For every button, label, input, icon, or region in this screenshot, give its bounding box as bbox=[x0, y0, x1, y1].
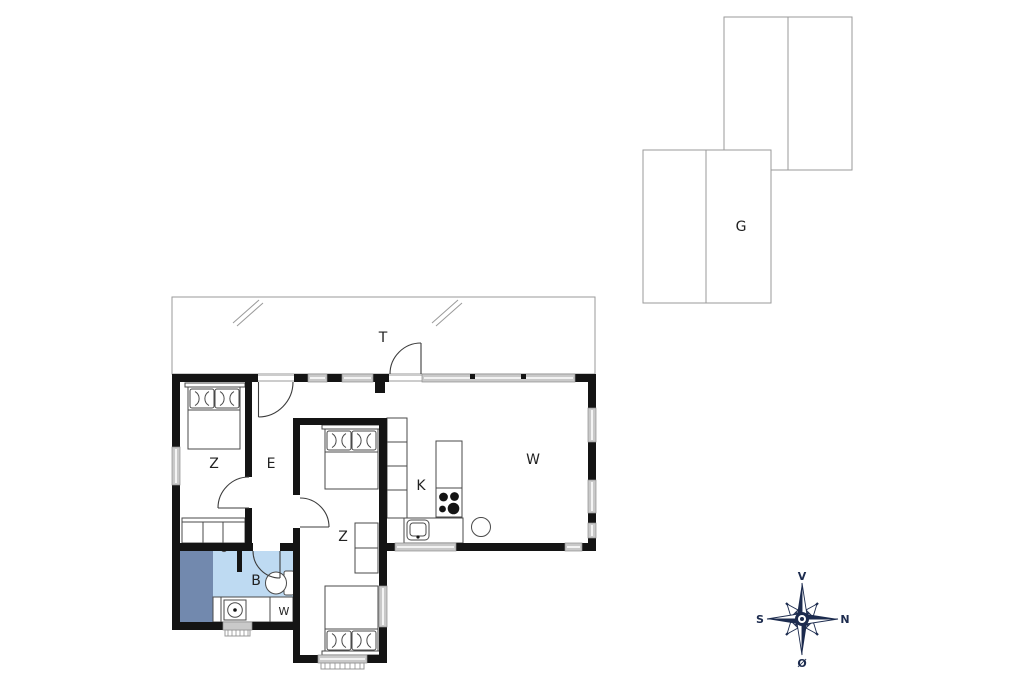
wall-segment bbox=[293, 418, 300, 663]
bedroom2-door bbox=[300, 498, 329, 527]
pillow bbox=[327, 431, 351, 450]
shower-floor bbox=[180, 547, 213, 622]
dresser bbox=[355, 523, 378, 573]
faucet-dot bbox=[416, 535, 419, 538]
window-mullion bbox=[521, 374, 526, 379]
round-stool bbox=[472, 518, 491, 537]
wall-stub bbox=[375, 382, 385, 393]
terrace: T bbox=[172, 297, 595, 374]
window-mullion bbox=[470, 374, 475, 379]
bed-headboard bbox=[322, 651, 381, 655]
pillow bbox=[327, 631, 351, 650]
shower-partition bbox=[237, 547, 242, 572]
kitchen-fixtures bbox=[387, 418, 491, 543]
stove-burner bbox=[448, 503, 460, 515]
room-label-bedroom2: Z bbox=[338, 529, 348, 545]
room-label-terrace: T bbox=[378, 330, 388, 346]
room-label-bathroom: B bbox=[251, 573, 261, 589]
room-label-living: W bbox=[526, 452, 540, 468]
compass-label-left: S bbox=[756, 613, 764, 626]
room-label-kitchen: K bbox=[416, 478, 426, 494]
washing-machine bbox=[224, 600, 246, 620]
bedroom1-door-opening bbox=[245, 477, 252, 508]
stove-burner bbox=[450, 492, 459, 501]
bed-headboard bbox=[185, 383, 245, 387]
kitchen-tall-cabinet-stove bbox=[436, 441, 462, 517]
bathroom-vent-window bbox=[223, 622, 252, 630]
room-label-utility: W bbox=[279, 605, 290, 618]
wall-segment bbox=[293, 418, 387, 425]
floor-plan-page: G T bbox=[0, 0, 1024, 682]
bathroom-door-opening bbox=[253, 543, 280, 551]
window-sill-grate bbox=[321, 663, 364, 669]
wall-segment bbox=[245, 382, 252, 543]
pillow bbox=[352, 631, 376, 650]
entrance-door bbox=[259, 382, 294, 417]
compass-label-right: N bbox=[840, 613, 849, 626]
bedroom1-door bbox=[218, 477, 249, 508]
bed-headboard bbox=[322, 425, 381, 429]
garage-buildings: G bbox=[643, 17, 852, 303]
floor-plan-drawing: G T bbox=[0, 0, 1024, 682]
stove-burner bbox=[439, 506, 446, 513]
pillow bbox=[190, 389, 214, 408]
garage-front-block bbox=[643, 150, 771, 303]
wardrobe bbox=[182, 518, 245, 543]
bedroom2-door-opening bbox=[293, 495, 300, 528]
room-label-bedroom1: Z bbox=[209, 456, 219, 472]
pillow bbox=[352, 431, 376, 450]
kitchen-sink-counter bbox=[404, 518, 463, 543]
stove-burner bbox=[439, 493, 448, 502]
compass-label-up: V bbox=[798, 570, 807, 583]
wall-segment bbox=[172, 374, 180, 630]
kitchen-cabinets-left bbox=[387, 418, 407, 518]
wall-segment bbox=[172, 543, 300, 551]
room-label-hall: E bbox=[267, 456, 276, 472]
compass-rose: V N S Ø bbox=[756, 570, 850, 670]
bedroom2-furniture bbox=[322, 425, 381, 655]
room-label-garage: G bbox=[736, 219, 747, 235]
compass-label-down: Ø bbox=[797, 657, 807, 670]
pillow bbox=[215, 389, 239, 408]
vent-grate bbox=[225, 630, 250, 636]
